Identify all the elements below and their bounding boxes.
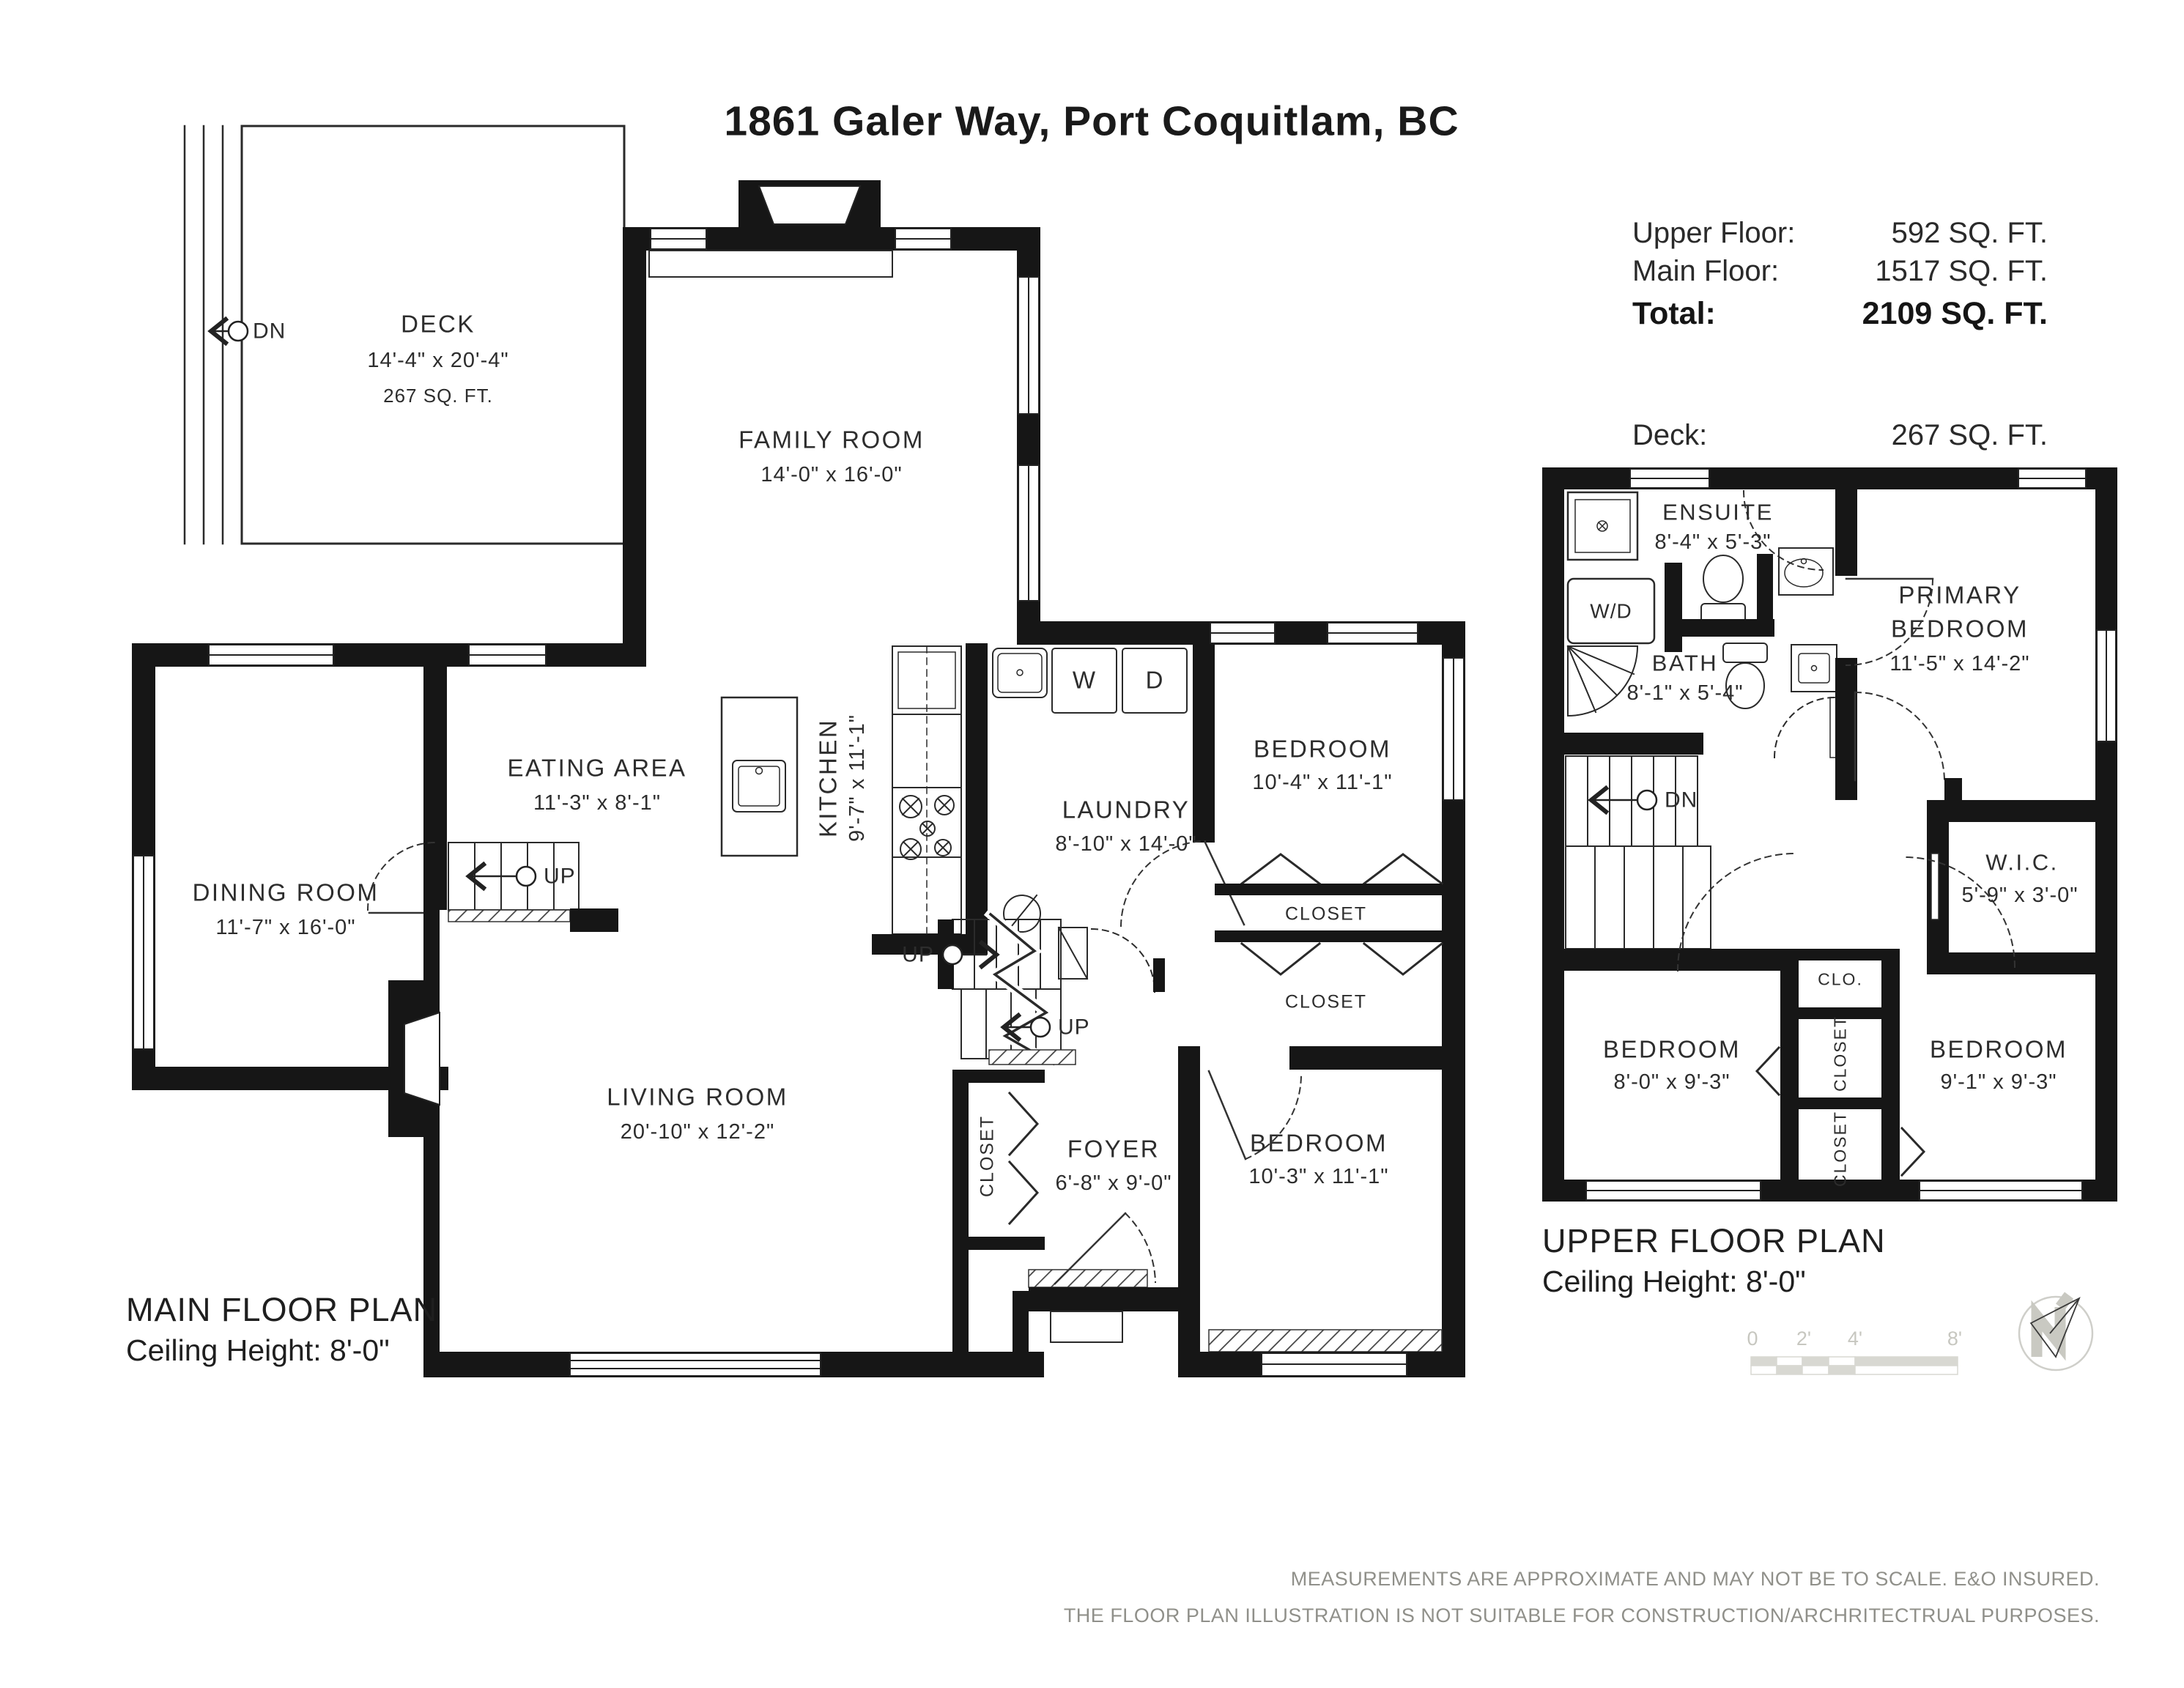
foyer-connector-wall xyxy=(1013,1291,1029,1377)
deck-dn-arrow xyxy=(211,319,248,343)
summary-value: 592 SQ. FT. xyxy=(1892,217,2048,250)
foyer-label: FOYER xyxy=(1067,1133,1160,1163)
summary-row-deck: Deck: 267 SQ. FT. xyxy=(1632,419,2048,452)
main-floor-plan-title: MAIN FLOOR PLAN xyxy=(126,1291,437,1329)
compass-icon xyxy=(2019,1295,2092,1370)
left-wing-windows xyxy=(133,645,546,1049)
up-mid-label: UP xyxy=(902,941,934,969)
family-windows xyxy=(651,229,1039,601)
summary-label: Deck: xyxy=(1632,419,1707,452)
summary-row-main: Main Floor: 1517 SQ. FT. xyxy=(1632,255,2048,288)
living-window xyxy=(570,1353,821,1376)
bedroom-top-label: BEDROOM xyxy=(1254,733,1391,763)
living-room-label: LIVING ROOM xyxy=(607,1081,788,1111)
family-room-label: FAMILY ROOM xyxy=(739,424,925,454)
hall-door xyxy=(1059,928,1155,992)
closet-lower-label: CLOSET xyxy=(1830,1111,1851,1187)
scale-4ft: 4' xyxy=(1848,1328,1862,1350)
kitchen-dims: 9'-7" x 11'-1" xyxy=(844,714,870,842)
primary-bedroom-label-1: PRIMARY xyxy=(1898,580,2021,610)
entry-hatch xyxy=(1029,1270,1147,1287)
eating-area-label: EATING AREA xyxy=(507,752,686,782)
primary-south-stub xyxy=(1835,756,1857,800)
living-room-dims: 20'-10" x 12'-2" xyxy=(621,1119,775,1145)
closet2-label: CLOSET xyxy=(1285,991,1367,1013)
dining-room-dims: 11'-7" x 16'-0" xyxy=(215,914,355,941)
foyer-bottom-wall xyxy=(1029,1287,1200,1311)
primary-bedroom-label-2: BEDROOM xyxy=(1891,613,2029,643)
closet-upper-label: CLOSET xyxy=(1830,1015,1851,1092)
kitchen-label: KITCHEN xyxy=(812,719,843,837)
bedroom-bottom-label: BEDROOM xyxy=(1250,1128,1388,1158)
dining-room-label: DINING ROOM xyxy=(193,877,380,907)
bath-label: BATH xyxy=(1652,650,1718,678)
laundry-label: LAUNDRY xyxy=(1062,794,1191,824)
summary-row-upper: Upper Floor: 592 SQ. FT. xyxy=(1632,217,2048,250)
upper-floor-plan-title: UPPER FLOOR PLAN xyxy=(1542,1222,1886,1260)
deck-label: DECK xyxy=(401,308,475,338)
dryer-label: D xyxy=(1146,665,1164,695)
ensuite-sink xyxy=(1779,548,1833,595)
upper-floor-ceiling: Ceiling Height: 8'-0" xyxy=(1542,1265,1806,1299)
kitchen-cabinets xyxy=(892,646,961,934)
family-room-dims: 14'-0" x 16'-0" xyxy=(760,462,902,488)
upper-stairs xyxy=(1566,756,1711,949)
ensuite-stub-wall xyxy=(1757,554,1773,627)
scale-0: 0 xyxy=(1747,1328,1758,1350)
bath-dims: 8'-1" x 5'-4" xyxy=(1626,680,1743,706)
upper-dn-label: DN xyxy=(1665,786,1698,814)
deck-dims: 14'-4" x 20'-4" xyxy=(367,347,508,374)
dining-up-label: UP xyxy=(544,862,576,890)
bath-sink xyxy=(1791,645,1837,692)
dining-stairs-hatch xyxy=(448,910,570,922)
foyer-closet-label: CLOSET xyxy=(976,1115,999,1197)
wd-label: W/D xyxy=(1590,599,1632,624)
ensuite-shower xyxy=(1568,492,1637,560)
deck-dn-label: DN xyxy=(253,317,286,345)
primary-west-wall xyxy=(1835,467,1857,778)
scale-8ft: 8' xyxy=(1947,1328,1962,1350)
summary-value: 1517 SQ. FT. xyxy=(1875,255,2048,288)
ensuite-toilet xyxy=(1701,555,1745,626)
up-low-label: UP xyxy=(1058,1013,1090,1041)
dining-up-arrow xyxy=(469,865,536,888)
primary-bedroom-dims: 11'-5" x 14'-2" xyxy=(1889,651,2029,677)
page-title: 1861 Galer Way, Port Coquitlam, BC xyxy=(724,95,1459,147)
stairs-south-wall xyxy=(1542,949,1780,971)
clo-label: CLO. xyxy=(1818,969,1863,991)
summary-value: 267 SQ. FT. xyxy=(1892,419,2048,452)
chimney xyxy=(759,186,860,224)
floorplan-page: { "title": "1861 Galer Way, Port Coquitl… xyxy=(0,0,2184,1688)
hearth xyxy=(649,251,892,277)
summary-row-total: Total: 2109 SQ. FT. xyxy=(1632,296,2048,332)
bedroom-left-dims: 8'-0" x 9'-3" xyxy=(1613,1069,1730,1095)
laundry-sink xyxy=(993,648,1047,697)
primary-door-jamb xyxy=(1944,778,1962,800)
kitchen-laundry-wall xyxy=(966,643,988,955)
laundry-dims: 8'-10" x 14'-0" xyxy=(1055,831,1196,857)
hall-jamb xyxy=(1153,958,1165,992)
bedroom-left-chevron xyxy=(1757,1048,1779,1095)
summary-label: Upper Floor: xyxy=(1632,217,1795,250)
foyer-east-wall xyxy=(1178,1046,1200,1377)
wd-wall xyxy=(1665,563,1682,652)
closet1-label: CLOSET xyxy=(1285,903,1367,925)
eating-area-dims: 11'-3" x 8'-1" xyxy=(533,790,661,816)
bath-south-wall xyxy=(1542,733,1703,755)
bedroom-right-chevron xyxy=(1902,1128,1924,1175)
fireplace-hearth xyxy=(404,1013,440,1105)
scale-2ft: 2' xyxy=(1796,1328,1811,1350)
summary-label: Total: xyxy=(1632,296,1716,332)
bedroom2-window xyxy=(1262,1353,1407,1376)
bedroom-bottom-dims: 10'-3" x 11'-1" xyxy=(1248,1163,1388,1190)
summary-value: 2109 SQ. FT. xyxy=(1862,296,2048,332)
stairs-hatch xyxy=(989,1050,1076,1065)
washer-label: W xyxy=(1073,665,1096,695)
foyer-dims: 6'-8" x 9'-0" xyxy=(1055,1170,1171,1196)
entry-stoop xyxy=(1051,1311,1122,1342)
main-floor-ceiling: Ceiling Height: 8'-0" xyxy=(126,1333,390,1368)
bedroom-closets xyxy=(1215,854,1442,1070)
deck-area: 267 SQ. FT. xyxy=(383,384,493,408)
wic-dims: 5'-9" x 3'-0" xyxy=(1961,882,2078,908)
summary-label: Main Floor: xyxy=(1632,255,1779,288)
kitchen-island xyxy=(722,697,797,856)
bedroom-left-label: BEDROOM xyxy=(1603,1034,1741,1064)
disclaimer-line2: THE FLOOR PLAN ILLUSTRATION IS NOT SUITA… xyxy=(1064,1604,2100,1627)
bedroom-right-dims: 9'-1" x 9'-3" xyxy=(1940,1069,2057,1095)
ensuite-bath-wall xyxy=(1682,619,1774,637)
ensuite-dims: 8'-4" x 5'-3" xyxy=(1654,529,1771,555)
ensuite-label: ENSUITE xyxy=(1662,499,1774,527)
bedroom-top-dims: 10'-4" x 11'-1" xyxy=(1252,769,1392,796)
primary-door xyxy=(1855,692,1944,782)
upper-dn-arrow xyxy=(1591,788,1656,812)
disclaimer-line1: MEASUREMENTS ARE APPROXIMATE AND MAY NOT… xyxy=(1291,1568,2100,1591)
stair-wall xyxy=(570,908,618,932)
wic-door-leaf xyxy=(1931,854,1939,919)
bedroom-right-label: BEDROOM xyxy=(1930,1034,2068,1064)
bedroom2-hatch xyxy=(1209,1330,1442,1352)
scale-bar xyxy=(1751,1357,1958,1374)
bath-door xyxy=(1774,697,1837,758)
wic-label: W.I.C. xyxy=(1985,849,2058,878)
